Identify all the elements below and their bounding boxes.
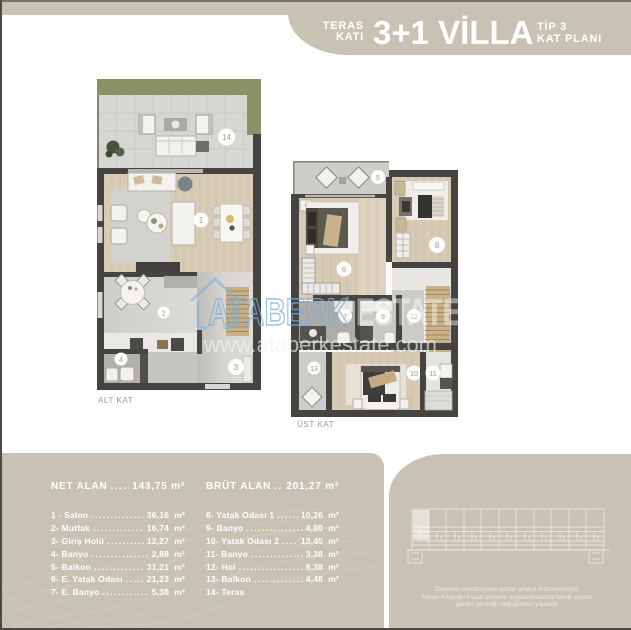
svg-text:REAL ESTATE: REAL ESTATE	[345, 289, 350, 325]
svg-text:ESTATE: ESTATE	[356, 292, 461, 334]
svg-text:ATABERK: ATABERK	[208, 292, 349, 334]
svg-text:www.ataberkestate.com: www.ataberkestate.com	[203, 332, 437, 357]
